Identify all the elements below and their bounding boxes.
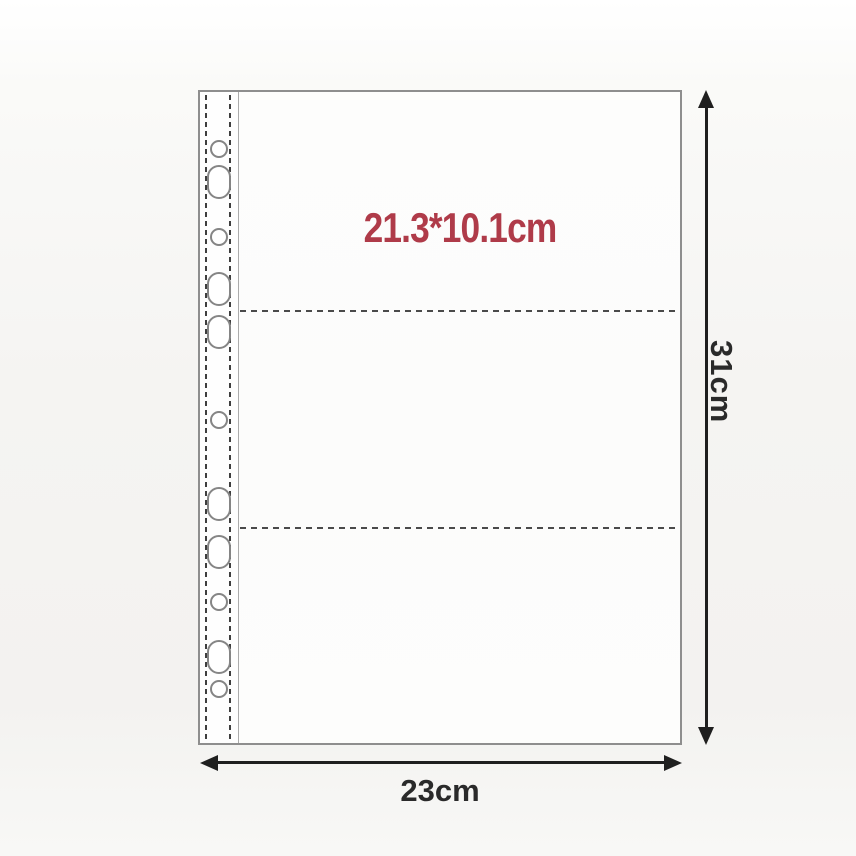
binder-strip bbox=[200, 92, 239, 743]
arrowhead-up-icon bbox=[698, 90, 714, 108]
punch-hole-oval bbox=[207, 487, 231, 521]
width-arrow-shaft bbox=[216, 761, 666, 764]
punch-hole-round bbox=[210, 680, 228, 698]
product-diagram: 21.3*10.1cm 31cm 23cm bbox=[0, 0, 856, 856]
punch-hole-round bbox=[210, 411, 228, 429]
punch-hole-round bbox=[210, 228, 228, 246]
punch-hole-oval bbox=[207, 315, 231, 349]
sheet-protector: 21.3*10.1cm bbox=[198, 90, 682, 745]
arrowhead-down-icon bbox=[698, 727, 714, 745]
punch-hole-oval bbox=[207, 165, 231, 199]
punch-hole-oval bbox=[207, 640, 231, 674]
pocket-divider-bottom bbox=[240, 527, 680, 529]
punch-hole-round bbox=[210, 140, 228, 158]
arrowhead-right-icon bbox=[664, 755, 682, 771]
arrowhead-left-icon bbox=[200, 755, 218, 771]
punch-hole-oval bbox=[207, 535, 231, 569]
width-label: 23cm bbox=[198, 773, 682, 809]
pocket-size-label: 21.3*10.1cm bbox=[275, 204, 645, 252]
punch-hole-oval bbox=[207, 272, 231, 306]
stitch-line-outer bbox=[205, 95, 207, 740]
height-label: 31cm bbox=[703, 340, 739, 423]
punch-hole-round bbox=[210, 593, 228, 611]
pocket-divider-top bbox=[240, 310, 680, 312]
